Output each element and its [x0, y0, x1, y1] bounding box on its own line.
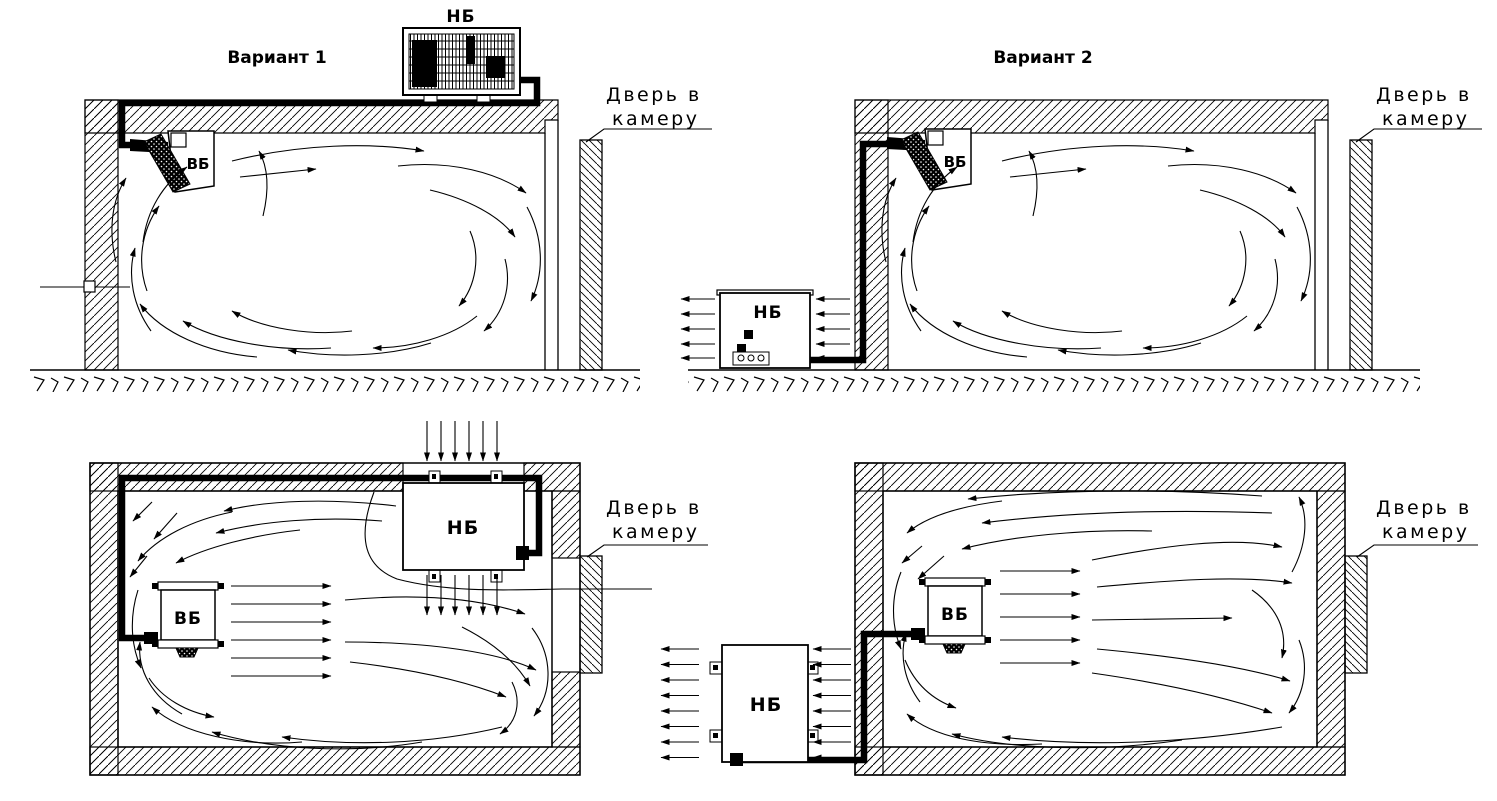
diagram-page: Вариант 1 НБ ВБ Дверь в камеру Вариант 2: [0, 0, 1497, 801]
door-leaf: [580, 556, 602, 673]
valve: [744, 330, 753, 339]
svg-text:Дверь в: Дверь в: [1376, 497, 1472, 519]
diagram-variant2-elevation: Вариант 2 НБ ВБ Дверь в камеру: [681, 48, 1482, 392]
door-label: Дверь в камеру: [1356, 84, 1482, 142]
diagram-variant2-plan: НБ ВБ Дверь в камеру: [661, 463, 1478, 775]
door-leader-line: [587, 545, 708, 557]
svg-text:Дверь в: Дверь в: [606, 84, 702, 106]
exhaust-air-arrows: [681, 299, 715, 358]
diagram-variant1-plan: НБ ВБ Дверь в камеру: [90, 421, 708, 775]
ground-hatch: [30, 373, 640, 392]
diagram-variant1-elevation: Вариант 1 НБ ВБ Дверь в камеру: [30, 7, 712, 392]
door-label: Дверь в камеру: [586, 84, 712, 142]
intake-air-arrows: [813, 649, 851, 758]
intake-air-arrows: [816, 299, 850, 358]
wall-feedthrough-box: [84, 281, 95, 292]
indoor-unit-label: ВБ: [174, 609, 202, 629]
variant1-title: Вариант 1: [227, 48, 326, 68]
indoor-unit-label: ВБ: [941, 605, 969, 625]
door-label: Дверь в камеру: [587, 497, 708, 557]
unit-leg: [424, 95, 437, 102]
outdoor-unit-label: НБ: [447, 517, 479, 539]
outdoor-unit-ground: [717, 290, 813, 368]
svg-text:Дверь в: Дверь в: [606, 497, 702, 519]
unit-leg: [477, 95, 490, 102]
outdoor-unit-label: НБ: [753, 303, 782, 323]
indoor-unit-label: ВБ: [187, 155, 210, 173]
door-leader-line: [1356, 129, 1482, 142]
svg-text:камеру: камеру: [612, 521, 699, 543]
svg-text:камеру: камеру: [612, 108, 699, 130]
svg-text:камеру: камеру: [1382, 521, 1469, 543]
evaporator-jet-arrows: [1000, 571, 1080, 663]
door-label: Дверь в камеру: [1357, 497, 1478, 557]
door-leaf: [1345, 556, 1367, 673]
pipe-fitting: [730, 753, 743, 766]
evaporator-jet-arrows: [231, 586, 331, 676]
door-leader-line: [586, 129, 712, 142]
door-leader-line: [1357, 545, 1478, 557]
refrigeration-installation-diagram: Вариант 1 НБ ВБ Дверь в камеру Вариант 2: [0, 0, 1497, 801]
ground-hatch: [688, 373, 1420, 392]
svg-text:камеру: камеру: [1382, 108, 1469, 130]
svg-text:Дверь в: Дверь в: [1376, 84, 1472, 106]
exhaust-air-arrows: [661, 649, 699, 758]
variant2-title: Вариант 2: [993, 48, 1092, 68]
outdoor-unit-label: НБ: [446, 7, 475, 27]
outdoor-unit-rooftop: [403, 28, 520, 102]
outdoor-unit-label: НБ: [750, 694, 782, 716]
pipe-fitting: [516, 546, 529, 560]
outside-air-in-arrows: [427, 421, 497, 461]
